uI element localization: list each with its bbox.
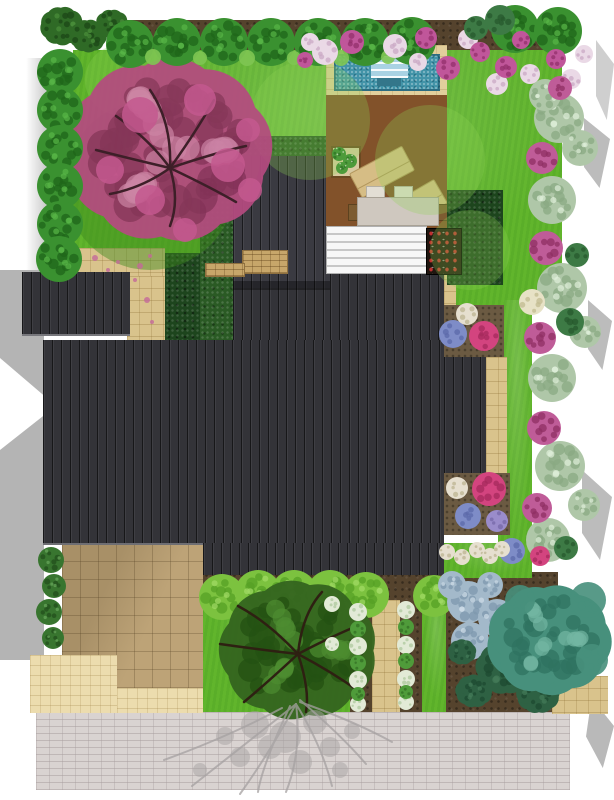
house-roof-upper-right <box>330 270 444 342</box>
front-bed-right <box>400 600 422 712</box>
right-shadow-wedge-1 <box>596 40 614 120</box>
louvered-pergola-roof <box>326 226 427 274</box>
front-step-strip <box>117 688 203 713</box>
lawn-below-bed2 <box>444 543 532 578</box>
house-roof-mid-right-wing <box>444 357 486 473</box>
stone-wall-block-1 <box>242 250 288 274</box>
hedge-column-b <box>165 253 200 345</box>
front-lawn-strip-narrow <box>422 600 448 712</box>
right-shadow-wedge-2 <box>584 118 610 188</box>
stone-wall-block-2 <box>205 263 245 277</box>
dining-table <box>357 197 439 226</box>
right-shadow-wedge-3 <box>588 300 612 370</box>
bbq-grill-station <box>426 228 462 275</box>
front-garden-path <box>372 600 400 712</box>
house-roof-main <box>43 340 444 545</box>
house-roof-lower <box>203 543 444 575</box>
pool-steps-shadow <box>377 78 401 86</box>
garden-design-plan <box>0 0 614 800</box>
front-bed-left <box>350 600 372 712</box>
front-lawn <box>203 598 350 712</box>
bottom-right-paving <box>552 676 608 714</box>
hedge-column-a <box>200 140 233 345</box>
front-soil-right <box>446 572 558 712</box>
house-roof-upper-left <box>233 286 330 342</box>
flower-bed-notch-1 <box>444 305 504 357</box>
right-shadow-wedge-4 <box>582 470 612 560</box>
left-border-shadow <box>26 58 50 270</box>
flower-bed-notch-2 <box>444 473 510 535</box>
right-path-vertical <box>486 357 507 473</box>
garage-roof <box>22 272 130 336</box>
front-terrace-light <box>30 655 117 713</box>
side-path-vertical <box>127 276 165 340</box>
hedge-top-of-garden-room <box>233 136 332 156</box>
pool-steps <box>371 56 408 78</box>
driveway-pavers <box>36 712 570 790</box>
garden-room-eave-shadow <box>233 281 330 290</box>
